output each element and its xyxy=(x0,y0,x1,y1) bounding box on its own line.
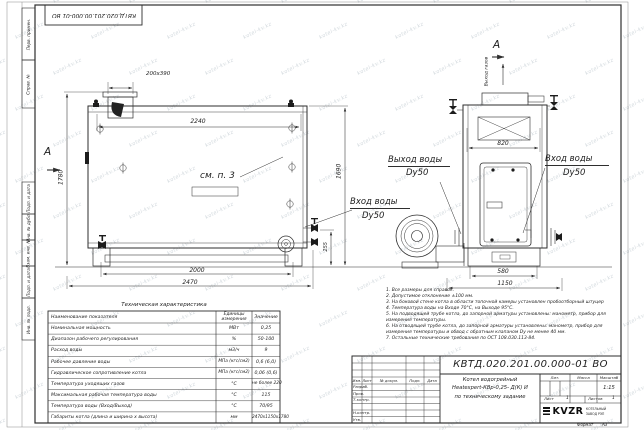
dim-2000: 2000 xyxy=(167,268,227,275)
margin-label-perv-primen: Перв. примен. xyxy=(22,8,35,60)
lit-label: Лит. xyxy=(540,376,570,380)
dim-1780: 1780 xyxy=(59,162,66,192)
spec-row-units: мм xyxy=(216,415,252,420)
scale-label: Масштаб xyxy=(597,376,621,380)
spec-row-value: 70/95 xyxy=(252,404,280,409)
burner-flange xyxy=(278,236,294,252)
spec-row-units: МПа (кгс/см2) xyxy=(216,360,252,365)
spec-row-name: Габариты котла (длина и ширина х высота) xyxy=(51,415,157,420)
spec-row-name: Расход воды xyxy=(51,348,82,353)
spec-row-units: °С xyxy=(216,393,252,398)
drain-valve xyxy=(98,235,106,249)
sheet-label: Лист xyxy=(544,397,554,401)
logo-bars-icon xyxy=(543,407,550,416)
spec-header-name: Наименование показателя xyxy=(51,315,117,320)
note-line: 6. На отводящей трубе котла, до запорной… xyxy=(386,324,610,336)
spec-row-units: % xyxy=(216,337,252,342)
spec-row-value: 0,25 xyxy=(252,326,280,331)
spec-row-units: м3/ч xyxy=(216,348,252,353)
door-handle xyxy=(487,202,502,208)
col-ndokum: № докум. xyxy=(372,379,406,383)
spec-row-name: Температура уходящих газов xyxy=(51,382,125,387)
ref-note: см. п. 3 xyxy=(200,171,235,181)
flue-collar xyxy=(482,93,528,105)
margin-label-sprav: Справ. № xyxy=(22,60,35,108)
doc-number: КВТД.020.201.00.000-01 ВО xyxy=(440,359,621,370)
dim-580: 580 xyxy=(473,269,533,276)
spec-row-name: Номинальная мощность xyxy=(51,326,111,331)
gas-out-label: Выход газов xyxy=(484,51,489,93)
spec-row-name: Рабочее давление воды xyxy=(51,360,110,365)
side-outlet-dn: Dy50 xyxy=(406,169,428,179)
spec-row-value: 50-100 xyxy=(252,337,280,342)
blower-fan xyxy=(396,215,464,268)
section-label-left: А xyxy=(44,147,51,159)
dim-flue: 200х390 xyxy=(146,71,170,77)
margin-label-podp-data-1: Подп. и дата xyxy=(22,182,35,214)
spec-row-value: 2470х1150х1780 xyxy=(252,415,280,420)
spec-row-units: МВт xyxy=(216,326,252,331)
row-tkontr: Т.контр. xyxy=(353,398,370,402)
spec-row-name: Температура воды (Вход/Выход) xyxy=(51,404,132,409)
dim-820: 820 xyxy=(473,141,533,148)
furnace-door xyxy=(480,163,531,246)
dim-255: 255 xyxy=(324,235,330,259)
drawing-sheet: kotel-kv.kzkotel-kv.kzkotel-kv.kzkotel-k… xyxy=(0,0,644,430)
sheets-label: Листов xyxy=(588,397,603,401)
spec-header-units: Единицы измерения xyxy=(216,312,252,322)
spec-row-value: 115 xyxy=(252,393,280,398)
spec-row-name: Максимальная рабочая температура воды xyxy=(51,393,157,398)
top-stamp-number: КВТД.020.201.00.000-01 ВО xyxy=(52,12,136,18)
scale-value: 1:15 xyxy=(597,386,621,392)
product-name-line1: Котел водогрейный xyxy=(441,378,539,384)
side-flanges xyxy=(455,228,555,246)
product-name-line3: по техническому задание xyxy=(441,395,539,401)
spec-row-units: МПа (кгс/см2) xyxy=(216,371,252,376)
nameplate xyxy=(192,187,238,196)
col-podp: Подп. xyxy=(406,379,424,383)
col-data: Дата xyxy=(424,379,440,383)
row-razrab: Разраб. xyxy=(353,385,368,389)
side-outlet-label: Выход воды xyxy=(388,156,450,167)
technical-notes: 1. Все размеры для справок. 2. Допустимо… xyxy=(386,288,610,342)
spec-row-units: °С xyxy=(216,404,252,409)
spec-row-value: 0,06 (0,6) xyxy=(252,371,280,376)
spec-row-name: Диапазон рабочего регулирования xyxy=(51,337,138,342)
top-stamp: КВТД.020.201.00.000-01 ВО xyxy=(45,5,142,25)
inlet-valves xyxy=(311,218,318,246)
spec-header-value: Значение xyxy=(252,315,280,320)
logo-text: KVZR xyxy=(553,406,584,417)
sheet-value: 1 xyxy=(566,397,569,402)
dim-2470: 2470 xyxy=(160,280,220,287)
margin-label-inv-dubl: Инв. № дубл. xyxy=(22,214,35,240)
port-marks xyxy=(97,123,295,210)
factory-logo: KVZR КОТЕЛЬНЫЙ ЗАВОД РЭП xyxy=(543,406,606,417)
mass-label: Масса xyxy=(570,376,597,380)
front-inlet-dn: Dy50 xyxy=(362,212,384,222)
col-list: Лист xyxy=(362,379,372,383)
dim-1690: 1690 xyxy=(337,156,344,186)
row-utv: Утв. xyxy=(353,418,361,422)
row-prov: Пров. xyxy=(353,392,364,396)
sheets-value: 1 xyxy=(612,397,615,402)
outlet-leader xyxy=(440,182,461,234)
margin-label-inv-podl: Инв. № подл. xyxy=(22,298,35,340)
spec-row-units: °С xyxy=(216,382,252,387)
spec-row-name: Гидравлическое сопротивление котла xyxy=(51,371,146,376)
dim-1150: 1150 xyxy=(475,281,535,288)
spec-row-value: 9 xyxy=(252,348,280,353)
ref-leader xyxy=(240,157,283,177)
front-inlet-label: Вход воды xyxy=(350,198,410,209)
row-nkontr: Н.контр. xyxy=(353,411,370,415)
logo-subtext: КОТЕЛЬНЫЙ ЗАВОД РЭП xyxy=(586,407,606,415)
extension-lines xyxy=(64,82,348,289)
spec-row-value: 0,6 (6,0) xyxy=(252,360,280,365)
margin-label-vzam-inv: Взам. инв. № xyxy=(22,240,35,266)
section-label-top: А xyxy=(493,40,500,52)
col-izm: Изм. xyxy=(352,379,362,383)
inlet-leader-side xyxy=(523,168,545,233)
spec-row-value: не более 220 xyxy=(252,382,280,387)
format-label: Формат xyxy=(577,423,593,427)
spec-table-title: Техническая характеристика xyxy=(48,302,280,308)
margin-label-podp-data-2: Подп. и дата xyxy=(22,266,35,298)
note-line: 7. Остальные технические требования по О… xyxy=(386,336,610,342)
dim-2240: 2240 xyxy=(168,119,228,126)
format-value: А3 xyxy=(602,423,607,427)
note-line: 5. На подводящей трубе котла, до запорно… xyxy=(386,312,610,324)
product-name-line2: Heatexpert-КВр-0,25- Д(К) И xyxy=(441,386,539,392)
side-inlet-label: Вход воды xyxy=(545,155,609,166)
side-inlet-dn: Dy50 xyxy=(563,169,585,179)
